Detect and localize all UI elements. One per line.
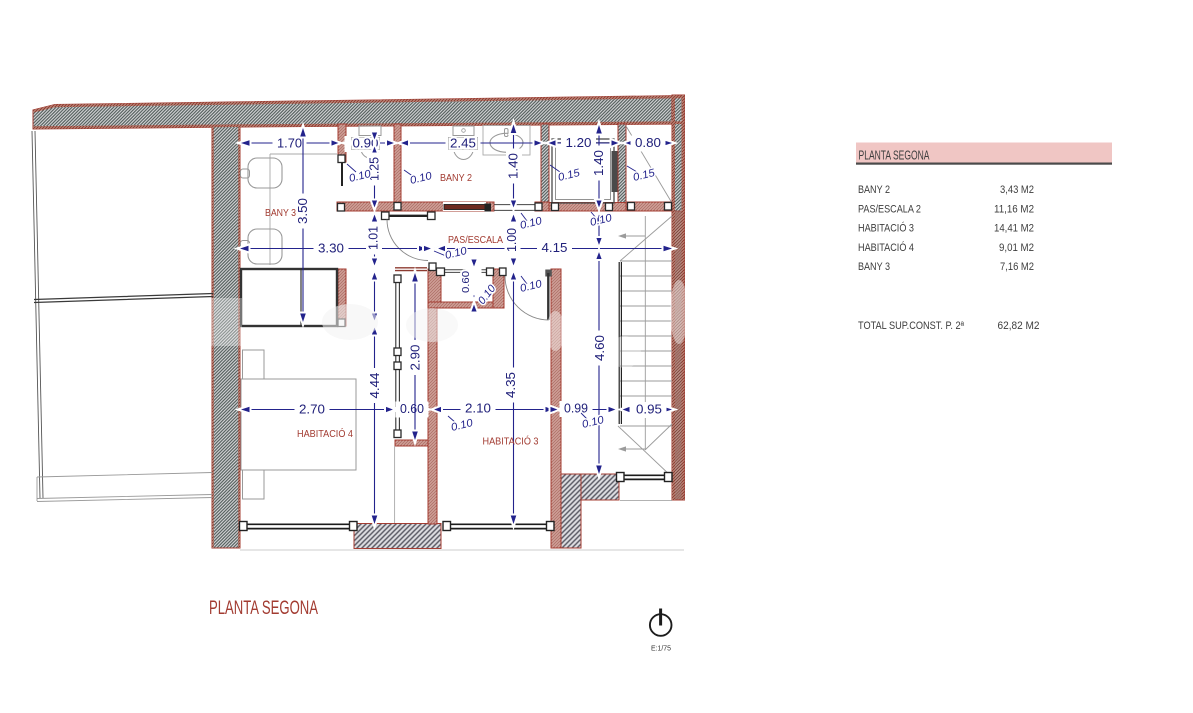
svg-text:14,41 M2: 14,41 M2 (994, 223, 1034, 235)
svg-text:0.60: 0.60 (400, 402, 424, 416)
svg-text:TOTAL SUP.CONST. P. 2ª: TOTAL SUP.CONST. P. 2ª (858, 320, 965, 332)
svg-text:1.20: 1.20 (566, 136, 592, 150)
svg-text:PLANTA SEGONA: PLANTA SEGONA (209, 598, 318, 619)
svg-text:1.70: 1.70 (277, 137, 302, 151)
svg-text:2.90: 2.90 (409, 344, 423, 370)
svg-text:0.80: 0.80 (635, 136, 661, 150)
svg-text:11,16 M2: 11,16 M2 (994, 203, 1034, 215)
svg-text:HABITACIÓ 4: HABITACIÓ 4 (297, 427, 353, 440)
svg-text:4.15: 4.15 (542, 241, 568, 255)
svg-text:9,01 M2: 9,01 M2 (999, 242, 1034, 254)
svg-text:3.50: 3.50 (296, 198, 310, 224)
svg-text:3.30: 3.30 (318, 242, 344, 256)
svg-text:HABITACIÓ 3: HABITACIÓ 3 (483, 435, 539, 448)
svg-text:1.40: 1.40 (507, 153, 521, 179)
svg-text:BANY 3: BANY 3 (858, 261, 890, 273)
svg-text:3,43 M2: 3,43 M2 (1000, 184, 1034, 196)
svg-text:PAS/ESCALA: PAS/ESCALA (448, 234, 503, 246)
svg-text:1.01: 1.01 (367, 226, 381, 250)
svg-text:0.60: 0.60 (460, 271, 472, 293)
svg-text:BANY 2: BANY 2 (858, 184, 890, 196)
svg-text:1.40: 1.40 (592, 150, 606, 176)
svg-text:4.35: 4.35 (504, 372, 518, 398)
svg-text:62,82 M2: 62,82 M2 (998, 320, 1040, 332)
svg-text:0.95: 0.95 (636, 403, 662, 417)
svg-text:2.10: 2.10 (465, 402, 491, 416)
svg-text:BANY 2: BANY 2 (440, 172, 472, 184)
svg-text:2.45: 2.45 (450, 137, 476, 151)
svg-text:BANY 3: BANY 3 (265, 207, 296, 219)
svg-text:HABITACIÓ 3: HABITACIÓ 3 (858, 222, 914, 235)
svg-text:4.44: 4.44 (368, 372, 382, 398)
svg-text:HABITACIÓ 4: HABITACIÓ 4 (858, 241, 914, 254)
svg-text:PLANTA SEGONA: PLANTA SEGONA (859, 148, 930, 163)
svg-text:7,16 M2: 7,16 M2 (1000, 261, 1034, 273)
svg-text:0.99: 0.99 (564, 402, 588, 416)
svg-text:1.00: 1.00 (505, 228, 519, 252)
svg-text:4.60: 4.60 (593, 335, 607, 361)
svg-text:PAS/ESCALA 2: PAS/ESCALA 2 (858, 203, 921, 215)
svg-text:E:1/75: E:1/75 (651, 644, 671, 653)
svg-text:2.70: 2.70 (299, 403, 325, 417)
